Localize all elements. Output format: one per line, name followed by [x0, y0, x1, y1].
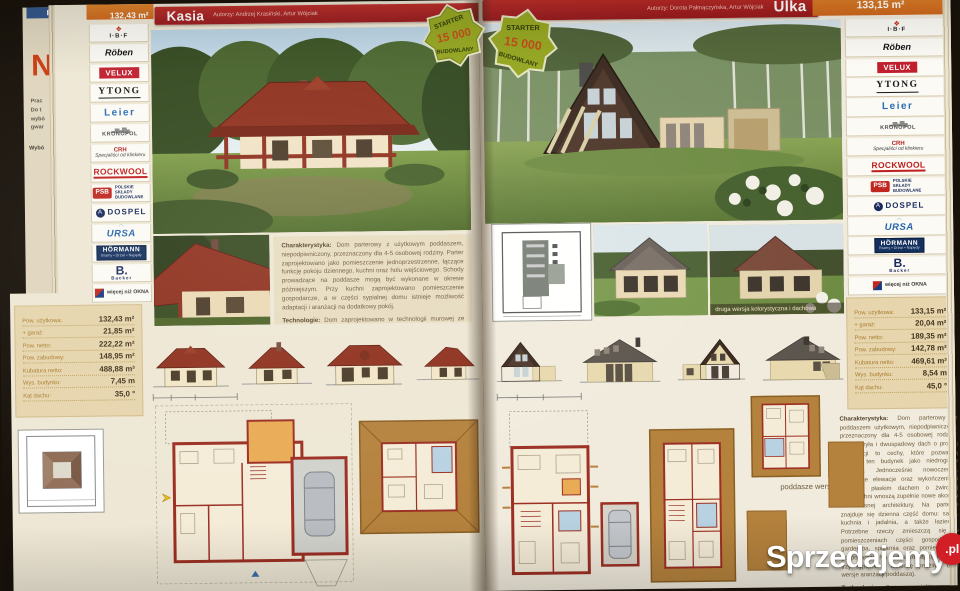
ulka-variant-illustration — [709, 224, 844, 316]
ulka-elevation-front — [494, 331, 564, 390]
rockwool-logo: ROCKWOOL — [846, 157, 950, 177]
ulka-site-plan — [491, 223, 592, 322]
ulka-elevations-row — [494, 326, 845, 390]
kasia-attic-plan-drawing — [357, 414, 481, 539]
open-book: Pr N Prac Do t wybó gwar Wybó 132,43 m² … — [0, 0, 960, 591]
spec-row: Pow. netto:189,35 m² — [854, 329, 946, 343]
variant-photo-caption: druga wersja kolorystyczna i dachowa — [710, 303, 844, 316]
kasia-secondary-illustration — [153, 235, 270, 326]
kasia-elevation-rear — [322, 333, 406, 390]
leier-logo: Leier — [90, 104, 150, 123]
sponsor-column-right: ❖I·B·F Röben VELUX YTONG Leier ▂▅▃▆▄KRON… — [845, 18, 952, 295]
kasia-photo-illustration — [151, 26, 471, 234]
ulka-attic-plan-v2 — [749, 394, 822, 479]
ulka-garage-drawing — [599, 500, 642, 569]
hormann-logo: HÖRMANNBramy • Drzwi • Napędy — [91, 244, 151, 263]
watermark-pl-badge: .pl — [936, 533, 960, 565]
kasia-elevation-front — [150, 335, 230, 392]
ulka-ground-plan-drawing — [499, 407, 601, 588]
ytong-logo: YTONG — [89, 84, 149, 103]
kasia-title: Kasia — [166, 8, 204, 23]
ulka-garage-plan — [599, 500, 642, 569]
kasia-elevation-side — [239, 334, 313, 391]
crh-logo: CRHSpecjaliści od klinkieru — [846, 137, 950, 157]
ulka-area-value: 133,15 m² — [856, 0, 904, 11]
ibf-logo: ❖I·B·F — [89, 24, 149, 43]
spec-row: Pow. zabudowy:142,78 m² — [855, 342, 947, 356]
psb-logo: PSBPOLSKIE SKŁADY BUDOWLANE — [91, 184, 151, 203]
okna-logo-icon — [873, 281, 882, 290]
ulka-technologie: Technologie: Dom zaprojektowano w techno… — [842, 583, 960, 586]
sprzedajemy-watermark: Sprzedajemy .pl — [766, 541, 960, 572]
roben-logo: Röben — [845, 38, 949, 58]
spec-row: Kąt dachu:45,0 ° — [855, 379, 947, 393]
velux-logo: VELUX — [845, 58, 949, 78]
ulka-ground-floor-plan — [499, 407, 601, 588]
rockwool-logo: ROCKWOOL — [90, 164, 150, 183]
ulka-scale-ruler — [495, 391, 585, 402]
starter-badge-right: STARTER 15 000 BUDOWLANY — [482, 3, 564, 85]
kasia-secondary-photo — [153, 235, 270, 326]
kronopol-logo: ▂▅▃▆▄KRONOPOL — [846, 117, 950, 137]
backer-logo: B.Backer — [848, 256, 952, 276]
technologie-label: Technologie: — [282, 317, 320, 324]
kasia-attic-plan — [357, 414, 481, 539]
technologie-label: Technologie: — [842, 585, 879, 586]
ulka-title: Ulka — [774, 0, 807, 15]
dospel-circle-icon: A — [95, 209, 104, 218]
spec-row: Wys. budynku:8,54 m — [855, 367, 947, 381]
dospel-circle-icon: A — [873, 202, 882, 211]
okna-logo-icon — [95, 288, 104, 297]
spec-row: Pow. użytkowa:133,15 m² — [854, 304, 946, 318]
charakterystyka-label: Charakterystyka: — [840, 416, 889, 423]
ulka-elevation-side — [577, 330, 662, 389]
ulka-attic-v2-drawing — [749, 394, 822, 479]
dospel-logo: ADOSPEL — [847, 197, 951, 217]
ursa-logo: ◠URSA — [847, 217, 951, 237]
backer-logo: B.Backer — [92, 264, 152, 283]
kasia-description: Charakterystyka: Dom parterowy z użytkow… — [273, 234, 472, 324]
spec-row: Kubatura netto:469,61 m³ — [855, 354, 947, 368]
ursa-logo: ◠URSA — [91, 224, 151, 243]
wiecej-niz-okna-logo: więcej niż OKNA — [92, 284, 152, 303]
ulka-elevation-rear — [675, 329, 746, 388]
charakterystyka-label: Charakterystyka: — [281, 242, 331, 250]
ulka-attic-plan-v1 — [648, 425, 738, 586]
sponsor-column-left: ❖I·B·F Röben VELUX YTONG Leier ▂▅▃▆▄KRON… — [89, 24, 152, 303]
wiecej-niz-okna-logo: więcej niż OKNA — [848, 276, 952, 296]
spec-row: + garaż:20,04 m² — [854, 317, 946, 331]
ibf-logo: ❖I·B·F — [845, 18, 949, 38]
dospel-logo: ADOSPEL — [91, 204, 151, 223]
kasia-ground-plan-drawing — [153, 400, 357, 590]
badge-top-text: STARTER — [506, 23, 540, 32]
kasia-spec-table: Pow. użytkowa:132,43 m² + garaż:21,85 m²… — [14, 304, 143, 418]
kasia-area-value: 132,43 m² — [110, 10, 149, 20]
kasia-area-box: 132,43 m² — [86, 4, 153, 20]
kasia-ground-floor-plan — [153, 400, 357, 590]
kasia-site-plan — [18, 429, 105, 514]
kronopol-logo: ▂▅▃▆▄KRONOPOL — [90, 124, 150, 143]
ulka-color-variant-photo: druga wersja kolorystyczna i dachowa — [709, 224, 844, 316]
watermark-text: Sprzedajemy — [766, 541, 946, 572]
kasia-main-photo — [151, 26, 471, 234]
spec-row: Kąt dachu:35,0 ° — [23, 387, 135, 401]
photographed-catalog-spread: Pr N Prac Do t wybó gwar Wybó 132,43 m² … — [0, 0, 960, 591]
roof-patch — [828, 441, 865, 507]
kasia-elevations-row — [150, 330, 481, 392]
ytong-logo: YTONG — [845, 78, 949, 98]
kasia-charakterystyka: Charakterystyka: Dom parterowy z użytkow… — [281, 240, 464, 313]
ulka-authors: Autorzy: Dorota Pałmączyńska, Artur Wójc… — [647, 4, 764, 11]
kasia-site-plan-drawing — [19, 430, 104, 513]
crh-logo: CRHSpecjaliści od klinkieru — [90, 144, 150, 163]
kasia-authors: Autorzy: Andrzej Krasiński, Artur Wójcia… — [213, 11, 318, 18]
ulka-area-box: 133,15 m² — [812, 0, 948, 16]
hormann-logo: HÖRMANNBramy • Drzwi • Napędy — [847, 236, 951, 256]
prev-page-link: Wybó — [29, 145, 44, 151]
ulka-spec-table: Pow. użytkowa:133,15 m² + garaż:20,04 m²… — [846, 296, 955, 409]
velux-logo: VELUX — [89, 64, 149, 83]
roben-logo: Röben — [89, 44, 149, 63]
ulka-elevation-side2 — [760, 328, 845, 387]
ulka-attic-v1-drawing — [648, 425, 738, 586]
psb-logo: PSBPOLSKIE SKŁADY BUDOWLANE — [847, 177, 951, 197]
leier-logo: Leier — [846, 98, 950, 118]
ulka-site-plan-drawing — [492, 224, 591, 321]
ulka-secondary-illustration — [593, 223, 708, 316]
ulka-secondary-photo — [593, 223, 708, 316]
